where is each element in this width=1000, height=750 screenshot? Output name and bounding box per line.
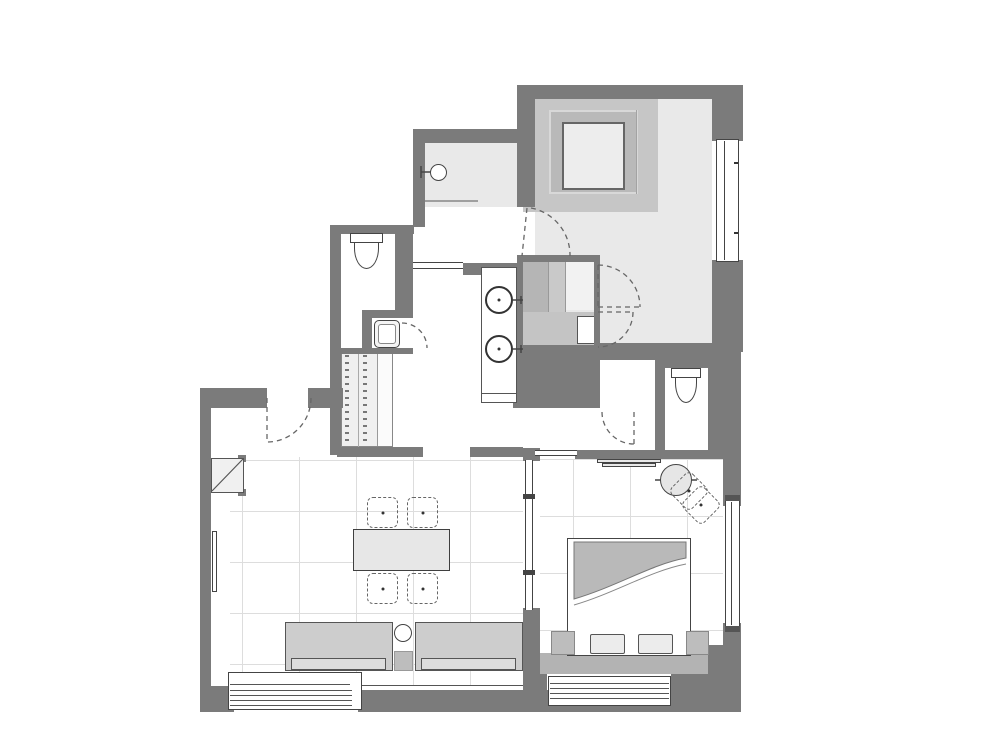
toilet-icon [350,233,383,243]
wall [671,674,710,692]
window-tick [734,162,738,164]
wall [413,129,523,143]
sofa-seat [421,658,516,670]
toilet-bowl [354,243,379,269]
door-swing [602,412,634,444]
wall [517,85,535,207]
sofa-between-block [394,651,413,671]
door-swing [267,398,311,442]
wall [470,447,523,457]
wall [517,255,600,262]
window-right-top [716,139,739,262]
nightstand [686,631,709,655]
wall [575,450,725,459]
dining-chair [367,573,398,604]
wall [341,348,413,354]
window-right-bottom-pane [731,502,732,625]
wall-shelf [602,463,656,467]
shelf-closet-divider [358,352,359,447]
glass-partition-joint [523,570,535,575]
floor-plan [0,0,1000,750]
wall [517,85,717,99]
sofa-side-table [394,624,412,642]
radiator [212,531,217,592]
shelf-closet-side-strip [377,353,392,446]
wardrobe-panel-mid [549,262,566,312]
washbasin-icon [485,286,513,314]
dining-chair [367,497,398,528]
window-cap [725,495,740,501]
window-bedroom-louvers [550,683,669,700]
window-right-top-pane [724,141,725,260]
window-tick [734,232,738,234]
wall [395,225,413,318]
window-right-bottom [725,500,740,627]
wall [655,360,665,452]
door-leaf [522,208,527,256]
pillow [590,634,625,654]
platform-joint-line [636,110,637,194]
window-living-louvers [230,690,352,708]
wall [517,255,523,348]
wall [594,255,600,345]
wardrobe-drawer-box [577,316,595,344]
wall [513,345,600,408]
sliding-door-bedroom [535,450,577,456]
window-cap [725,626,740,632]
dining-chair [407,573,438,604]
nightstand [551,631,575,655]
wall [200,388,211,712]
pillow [638,634,673,654]
dining-table [353,529,450,571]
duvet-wave [568,539,692,657]
wall [330,225,341,455]
glass-partition [525,460,533,610]
sliding-door-hall [413,262,463,269]
washbasin-icon [485,335,513,363]
wall [337,447,423,457]
service-shaft [211,458,244,493]
window-living-sill-line [230,684,350,685]
wall [708,343,741,458]
wall [712,85,743,141]
shelf-ticks-left [345,355,349,445]
vanity-counter-divider [481,393,517,394]
shelf-ticks-right [363,355,367,445]
toilet-bowl [675,378,697,403]
shower-glass [425,200,478,202]
sofa-seat [291,658,386,670]
wall [413,129,425,227]
wall [362,312,372,350]
tatami-platform-table [562,122,625,190]
wall [595,343,741,360]
wall [712,260,743,352]
wall [308,388,343,408]
shower-head-icon [430,164,447,181]
wall [358,690,540,712]
door-swing [402,323,427,348]
toilet-icon [671,368,701,378]
small-basin-inner [378,324,396,344]
double-bed [567,538,691,656]
dining-chair [407,497,438,528]
wall [523,608,540,690]
glass-partition-joint [523,494,535,499]
wardrobe-panel-right [566,262,594,310]
wardrobe-panel-left [523,262,549,312]
